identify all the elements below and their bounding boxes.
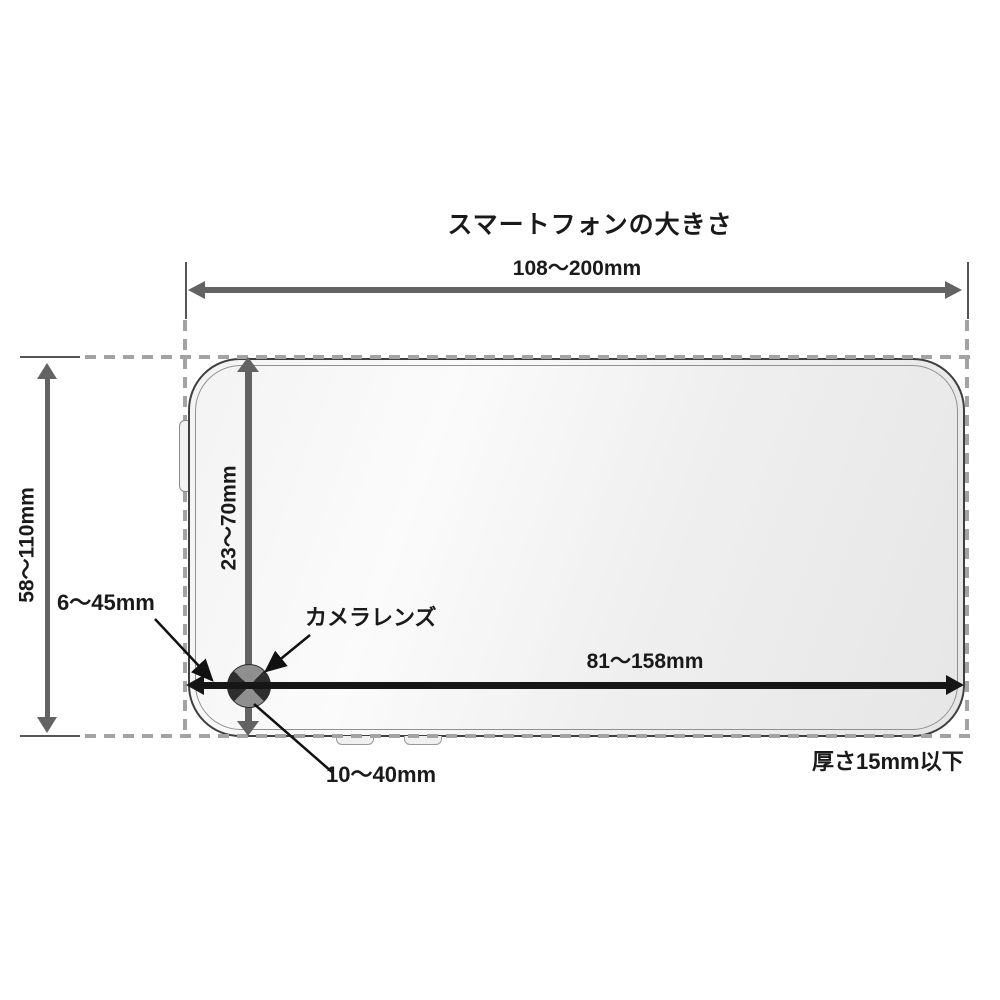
lens-bottom-dimension-label: 10〜40mm — [326, 763, 436, 787]
vertical-lens-arrowhead-down — [237, 721, 259, 736]
vertical-lens-arrowhead-up — [237, 357, 259, 372]
lens-left-dimension-label: 6〜45mm — [57, 591, 155, 615]
height-dimension-label: 58〜110mm — [15, 487, 38, 603]
top-width-arrowhead-right — [945, 281, 962, 299]
extension-line-right — [967, 262, 969, 319]
smartphone-size-diagram: スマートフォンの大きさ 108〜200mm 58〜110mm 23〜70mm 8… — [0, 0, 1000, 1000]
thickness-label: 厚さ15mm以下 — [812, 750, 964, 774]
phone-inner-outline — [195, 365, 958, 730]
dashed-guide-horizontal-bottom — [85, 734, 975, 738]
horizontal-lens-arrowhead-left — [186, 675, 204, 695]
lens-right-dimension-label: 81〜158mm — [545, 650, 745, 673]
diagram-title: スマートフォンの大きさ — [300, 212, 880, 240]
left-height-arrow — [45, 378, 50, 718]
phone-outline — [188, 358, 965, 737]
dashed-guide-horizontal-top — [85, 355, 975, 359]
extension-line-left — [185, 262, 187, 319]
extension-tick-top-left — [20, 356, 80, 358]
lens-top-dimension-label: 23〜70mm — [217, 465, 240, 570]
top-width-arrowhead-left — [188, 281, 205, 299]
left-height-arrowhead-up — [37, 363, 57, 379]
left-height-arrowhead-down — [37, 717, 57, 733]
camera-lens-label: カメラレンズ — [305, 606, 437, 630]
width-dimension-label: 108〜200mm — [377, 257, 777, 280]
extension-tick-bottom-left — [20, 735, 80, 737]
horizontal-lens-arrow — [203, 682, 949, 689]
top-width-arrow — [205, 287, 945, 293]
dashed-guide-vertical-right — [965, 320, 969, 738]
horizontal-lens-arrowhead-right — [946, 675, 964, 695]
